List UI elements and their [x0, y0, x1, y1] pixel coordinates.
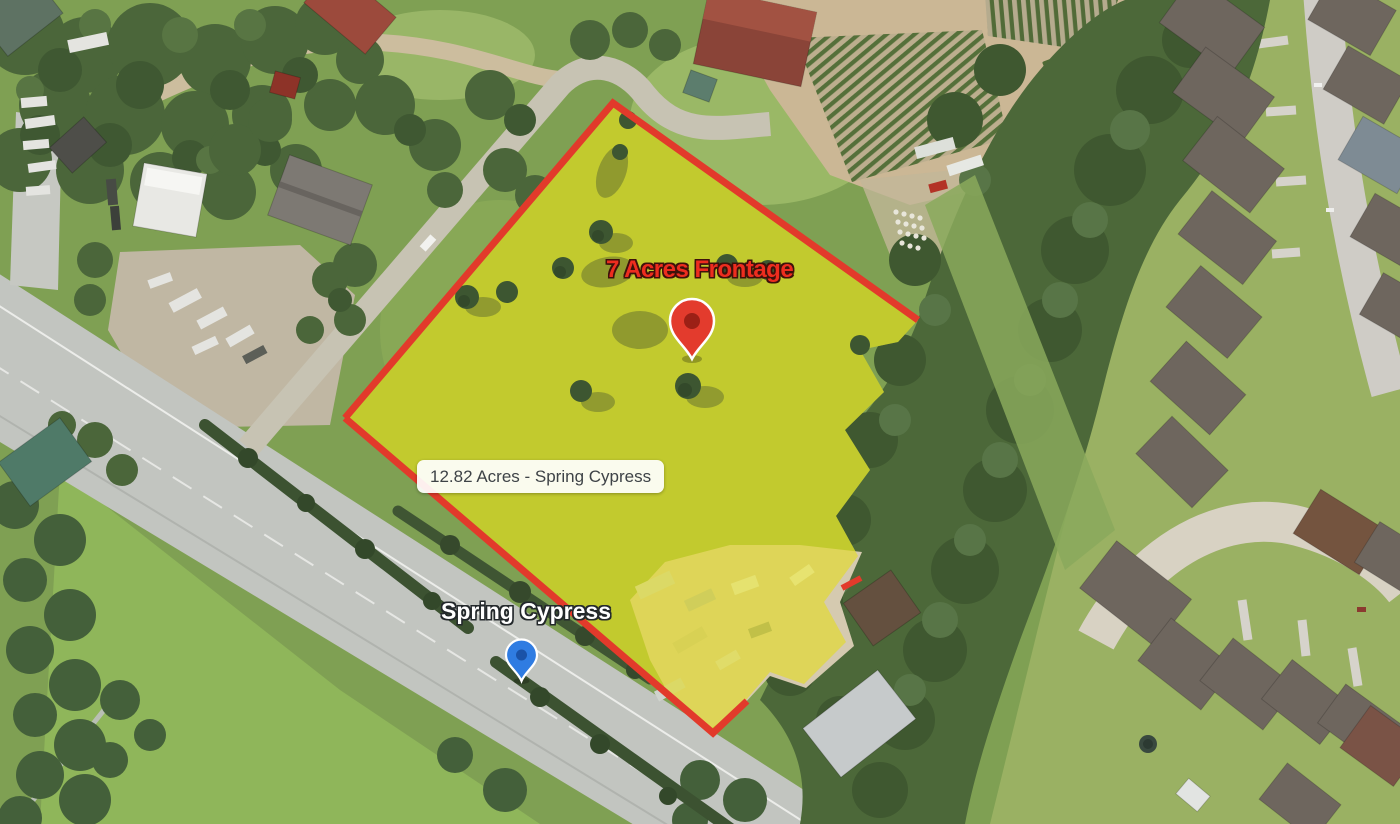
map-canvas[interactable]: 7 Acres Frontage 12.82 Acres - Spring Cy…: [0, 0, 1400, 824]
satellite-imagery: [0, 0, 1400, 824]
